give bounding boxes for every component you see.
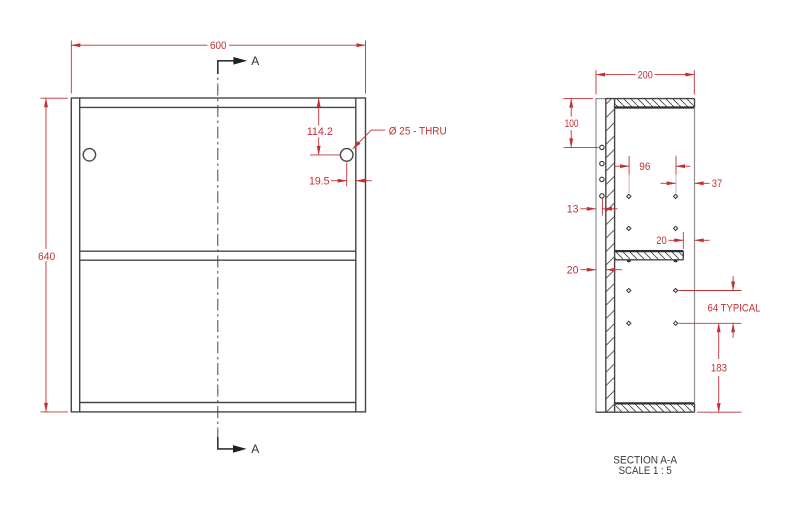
svg-text:19.5: 19.5: [309, 175, 330, 187]
svg-text:96: 96: [639, 161, 650, 173]
svg-text:13: 13: [567, 204, 579, 216]
svg-text:20: 20: [567, 264, 579, 276]
svg-text:183: 183: [711, 363, 727, 375]
svg-text:SCALE 1 : 5: SCALE 1 : 5: [619, 465, 672, 477]
svg-text:200: 200: [638, 69, 653, 81]
svg-text:A: A: [251, 442, 259, 456]
svg-text:100: 100: [565, 118, 579, 130]
svg-text:640: 640: [38, 251, 55, 263]
svg-text:Ø 25 - THRU: Ø 25 - THRU: [389, 125, 447, 137]
svg-text:A: A: [251, 54, 259, 68]
svg-text:64 TYPICAL: 64 TYPICAL: [708, 303, 761, 315]
svg-text:20: 20: [656, 235, 667, 247]
svg-text:114.2: 114.2: [307, 126, 333, 138]
svg-text:37: 37: [712, 178, 723, 190]
svg-text:600: 600: [210, 40, 227, 52]
